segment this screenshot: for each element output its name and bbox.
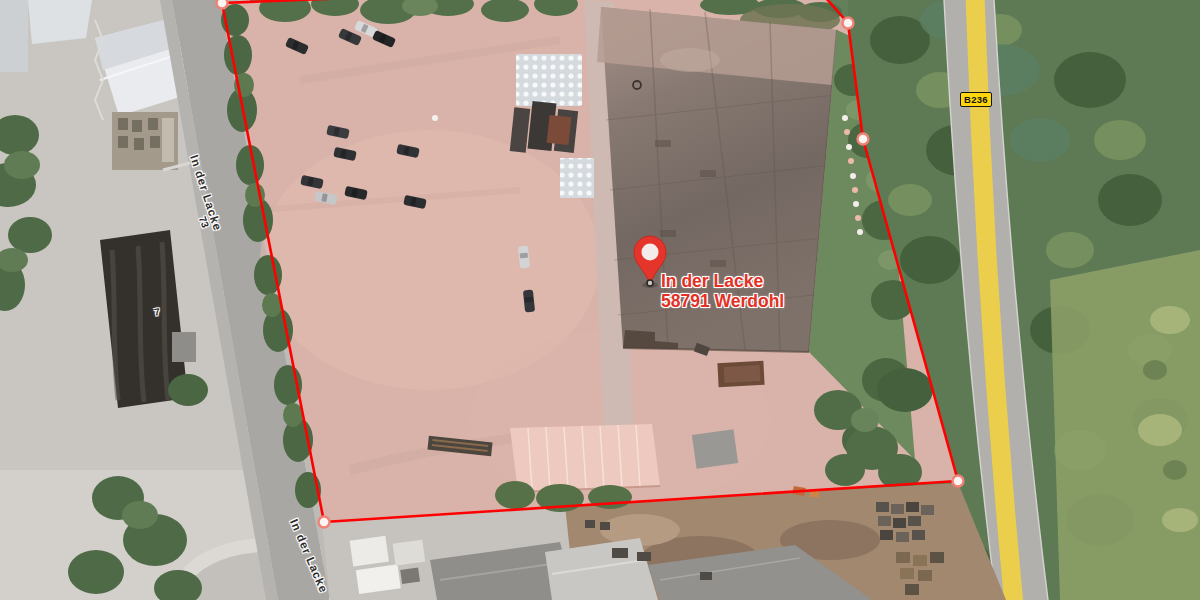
boundary-vertex[interactable] — [319, 517, 330, 528]
map-viewport[interactable]: In der Lacke 58791 Werdohl B236 In der L… — [0, 0, 1200, 600]
satellite-map[interactable] — [0, 0, 1200, 600]
satellite-imagery — [0, 0, 1200, 600]
boundary-vertex[interactable] — [217, 0, 228, 9]
boundary-vertex[interactable] — [843, 18, 854, 29]
boundary-vertex[interactable] — [953, 476, 964, 487]
boundary-vertex[interactable] — [858, 134, 869, 145]
